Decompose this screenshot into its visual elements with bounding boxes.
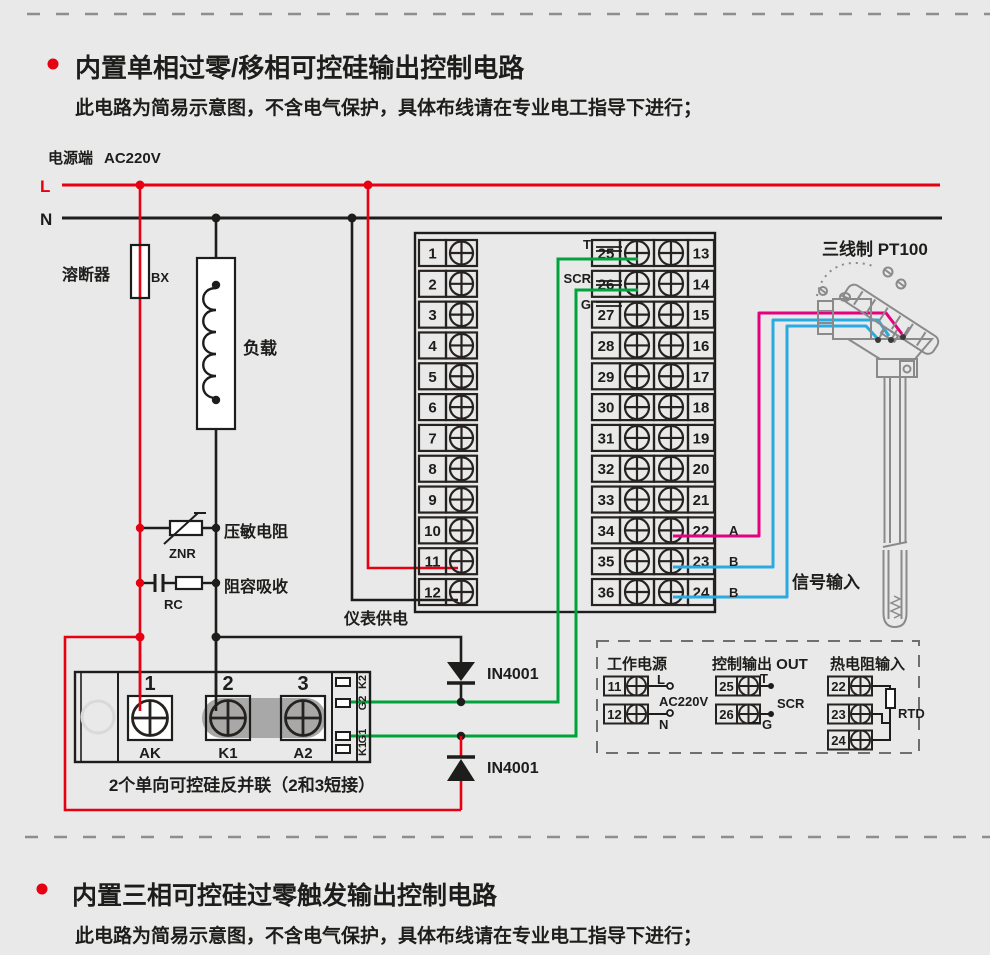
module-label-AK: AK xyxy=(139,745,161,762)
legend-AC220V: AC220V xyxy=(659,694,708,709)
screw-terminal-icon xyxy=(625,580,649,604)
screw-terminal-icon xyxy=(659,333,683,357)
varistor-label: 压敏电阻 xyxy=(224,522,288,541)
label-T: T xyxy=(583,237,591,252)
wire-label-A: A xyxy=(729,523,739,538)
section1-title: 内置单相过零/移相可控硅输出控制电路 xyxy=(75,53,525,83)
pt100-sensor-illustration: 三线制 PT100 xyxy=(817,239,941,627)
legend-terminal-22: 22 xyxy=(831,679,845,694)
terminal-number-left-1: 1 xyxy=(428,246,436,263)
terminal-number-left-12: 12 xyxy=(424,585,441,602)
terminal-number-right-13: 13 xyxy=(693,246,710,263)
screw-terminal-icon xyxy=(450,272,473,295)
terminal-number-left-7: 7 xyxy=(428,430,436,447)
screw-terminal-icon xyxy=(450,396,473,419)
module-screw-icon xyxy=(133,701,168,736)
line-N-label: N xyxy=(40,210,52,229)
wiring-diagram-page: 内置单相过零/移相可控硅输出控制电路 此电路为简易示意图，不含电气保护，具体布线… xyxy=(0,0,990,955)
terminal-number-mid-34: 34 xyxy=(598,523,615,540)
section2-subtitle: 此电路为简易示意图，不含电气保护，具体布线请在专业电工指导下进行； xyxy=(75,924,702,947)
screw-terminal-icon xyxy=(659,488,683,512)
legend-SCR: SCR xyxy=(777,696,805,711)
line-L-label: L xyxy=(40,177,50,196)
screw-terminal-icon xyxy=(659,364,683,388)
legend-box: 工作电源 控制输出 OUT 热电阻输入 11122526222324 L AC2… xyxy=(597,641,925,753)
label-SCR: SCR xyxy=(564,271,592,286)
screw-terminal-icon xyxy=(625,364,649,388)
screw-terminal-icon xyxy=(450,365,473,388)
module-terminal-1: 1 xyxy=(144,673,155,695)
screw-terminal-icon xyxy=(450,457,473,480)
terminal-number-mid-36: 36 xyxy=(598,585,615,602)
screw-terminal-icon xyxy=(659,549,683,573)
wire-label-B2: B xyxy=(729,585,738,600)
sensor-title: 三线制 PT100 xyxy=(822,239,928,259)
meter-supply-wires: 仪表供电 xyxy=(343,185,458,628)
screw-terminal-icon xyxy=(625,272,649,296)
diode-top-label: IN4001 xyxy=(487,666,539,683)
screw-terminal-icon xyxy=(627,705,646,724)
module-screw-icon xyxy=(286,701,321,736)
screw-terminal-icon xyxy=(450,581,473,604)
sensor-cap xyxy=(837,282,941,362)
red-junction-dots xyxy=(136,181,373,642)
wire-label-B1: B xyxy=(729,554,738,569)
screw-terminal-icon xyxy=(851,705,870,724)
terminal-number-mid-35: 35 xyxy=(598,554,615,571)
fuse-code-label: BX xyxy=(151,270,169,285)
scr-module: 1 2 3 AK K1 A2 K2 G2 G1 K1 2个单向可控硅反并联（2和… xyxy=(75,672,375,795)
screw-terminal-icon xyxy=(659,241,683,265)
fuse-label: 溶断器 xyxy=(62,265,111,284)
module-label-A2: A2 xyxy=(293,745,312,762)
load-label: 负载 xyxy=(243,338,277,358)
terminal-number-mid-28: 28 xyxy=(598,338,615,355)
section2-bullet-icon xyxy=(37,884,48,895)
legend-N: N xyxy=(659,717,668,732)
rtd-element-icon xyxy=(891,596,900,618)
pin-label-K2: K2 xyxy=(357,675,369,689)
section1-subtitle: 此电路为简易示意图，不含电气保护，具体布线请在专业电工指导下进行； xyxy=(75,96,702,119)
sensor-nut xyxy=(818,301,833,334)
terminal-number-mid-29: 29 xyxy=(598,369,615,386)
screw-terminal-icon xyxy=(450,519,473,542)
screw-terminal-icon xyxy=(450,550,473,573)
diode-top: IN4001 xyxy=(447,662,539,702)
screw-terminal-icon xyxy=(851,731,870,750)
diode-bottom: IN4001 xyxy=(447,736,539,810)
probe-break-mark xyxy=(883,542,907,547)
terminal-number-right-17: 17 xyxy=(693,369,710,386)
trigger-wire-T xyxy=(351,259,638,702)
terminal-number-right-21: 21 xyxy=(693,492,710,509)
terminal-number-left-8: 8 xyxy=(428,461,436,478)
resistor-symbol xyxy=(176,577,202,589)
legend-terminal-25: 25 xyxy=(719,679,733,694)
screw-terminal-icon xyxy=(739,677,758,696)
screw-terminal-icon xyxy=(627,677,646,696)
screw-terminal-icon xyxy=(450,426,473,449)
pin-label-K1b: K1 xyxy=(357,742,369,756)
diode-bottom-label: IN4001 xyxy=(487,760,539,777)
screw-terminal-icon xyxy=(450,242,473,265)
legend-rtd-title: 热电阻输入 xyxy=(830,655,905,673)
legend-terminal-11: 11 xyxy=(608,679,622,694)
terminal-number-mid-31: 31 xyxy=(598,430,615,447)
screw-terminal-icon xyxy=(625,518,649,542)
terminal-number-mid-27: 27 xyxy=(598,307,615,324)
screw-terminal-icon xyxy=(659,272,683,296)
rc-label: 阻容吸收 xyxy=(224,577,288,596)
pin-label-G2: G2 xyxy=(357,696,369,711)
terminal-number-left-3: 3 xyxy=(428,307,436,324)
screw-terminal-icon xyxy=(851,677,870,696)
sensor-clamp xyxy=(900,361,914,377)
module-terminal-3: 3 xyxy=(297,673,308,695)
terminal-number-left-10: 10 xyxy=(424,523,441,540)
terminal-number-right-24: 24 xyxy=(693,585,710,602)
terminal-number-right-15: 15 xyxy=(693,307,710,324)
screw-terminal-icon xyxy=(659,426,683,450)
screw-terminal-icon xyxy=(450,488,473,511)
module-terminal-2: 2 xyxy=(222,673,233,695)
screw-terminal-icon xyxy=(659,303,683,327)
screw-terminal-icon xyxy=(625,333,649,357)
terminal-number-right-14: 14 xyxy=(693,276,710,293)
terminal-number-left-9: 9 xyxy=(428,492,436,509)
varistor-code-label: ZNR xyxy=(169,546,196,561)
screw-terminal-icon xyxy=(739,705,758,724)
rc-code-label: RC xyxy=(164,597,183,612)
sensor-probe xyxy=(883,377,907,627)
terminal-number-left-2: 2 xyxy=(428,276,436,293)
legend-terminal-23: 23 xyxy=(831,707,845,722)
terminal-number-mid-30: 30 xyxy=(598,400,615,417)
screw-terminal-icon xyxy=(625,549,649,573)
terminal-number-left-4: 4 xyxy=(428,338,437,355)
screw-terminal-icon xyxy=(625,488,649,512)
screw-terminal-icon xyxy=(625,457,649,481)
terminal-number-left-11: 11 xyxy=(425,554,441,571)
terminal-number-right-20: 20 xyxy=(693,461,710,478)
screw-terminal-icon xyxy=(659,395,683,419)
section2-title: 内置三相可控硅过零触发输出控制电路 xyxy=(72,881,498,910)
screw-terminal-icon xyxy=(659,518,683,542)
screw-terminal-icon xyxy=(659,457,683,481)
terminal-number-left-6: 6 xyxy=(428,400,436,417)
terminal-number-right-16: 16 xyxy=(693,338,710,355)
screw-terminal-icon xyxy=(625,426,649,450)
fuse-branch: 溶断器 BX xyxy=(62,185,169,710)
legend-G: G xyxy=(762,717,772,732)
mounting-hole-icon xyxy=(82,701,114,733)
legend-rtd-resistor xyxy=(886,689,895,708)
module-caption: 2个单向可控硅反并联（2和3短接） xyxy=(109,775,375,795)
screw-terminal-icon xyxy=(625,395,649,419)
terminal-number-mid-32: 32 xyxy=(598,461,615,478)
label-G: G xyxy=(581,297,591,312)
signal-input-label: 信号输入 xyxy=(792,572,860,592)
module-label-K1: K1 xyxy=(218,745,237,762)
screw-terminal-icon xyxy=(450,303,473,326)
terminal-number-mid-33: 33 xyxy=(598,492,615,509)
power-terminal-label: 电源端 xyxy=(48,149,93,167)
meter-supply-label: 仪表供电 xyxy=(343,609,408,628)
varistor-branch: 压敏电阻 ZNR xyxy=(140,513,288,561)
screw-terminal-icon xyxy=(625,303,649,327)
legend-terminal-26: 26 xyxy=(719,707,733,722)
legend-power-title: 工作电源 xyxy=(607,655,667,673)
section1-bullet-icon xyxy=(48,59,59,70)
screw-terminal-icon xyxy=(659,580,683,604)
circuit-diagram: 内置单相过零/移相可控硅输出控制电路 此电路为简易示意图，不含电气保护，具体布线… xyxy=(0,0,990,955)
terminal-number-right-18: 18 xyxy=(693,400,710,417)
legend-T: T xyxy=(760,671,768,686)
legend-terminal-12: 12 xyxy=(607,707,621,722)
terminal-number-left-5: 5 xyxy=(428,369,436,386)
screw-terminal-icon xyxy=(625,241,649,265)
terminal-number-right-19: 19 xyxy=(693,430,710,447)
legend-terminal-24: 24 xyxy=(831,733,846,748)
legend-L: L xyxy=(657,672,665,687)
terminal-block: 1251322614327154281652917630187311983220… xyxy=(415,233,715,612)
diode-feed-wire xyxy=(216,637,461,662)
gate-pins xyxy=(336,678,350,753)
screw-terminal-icon xyxy=(450,334,473,357)
pin-label-G1: G1 xyxy=(357,729,369,744)
power-voltage-label: AC220V xyxy=(104,150,161,167)
legend-RTD: RTD xyxy=(898,706,925,721)
